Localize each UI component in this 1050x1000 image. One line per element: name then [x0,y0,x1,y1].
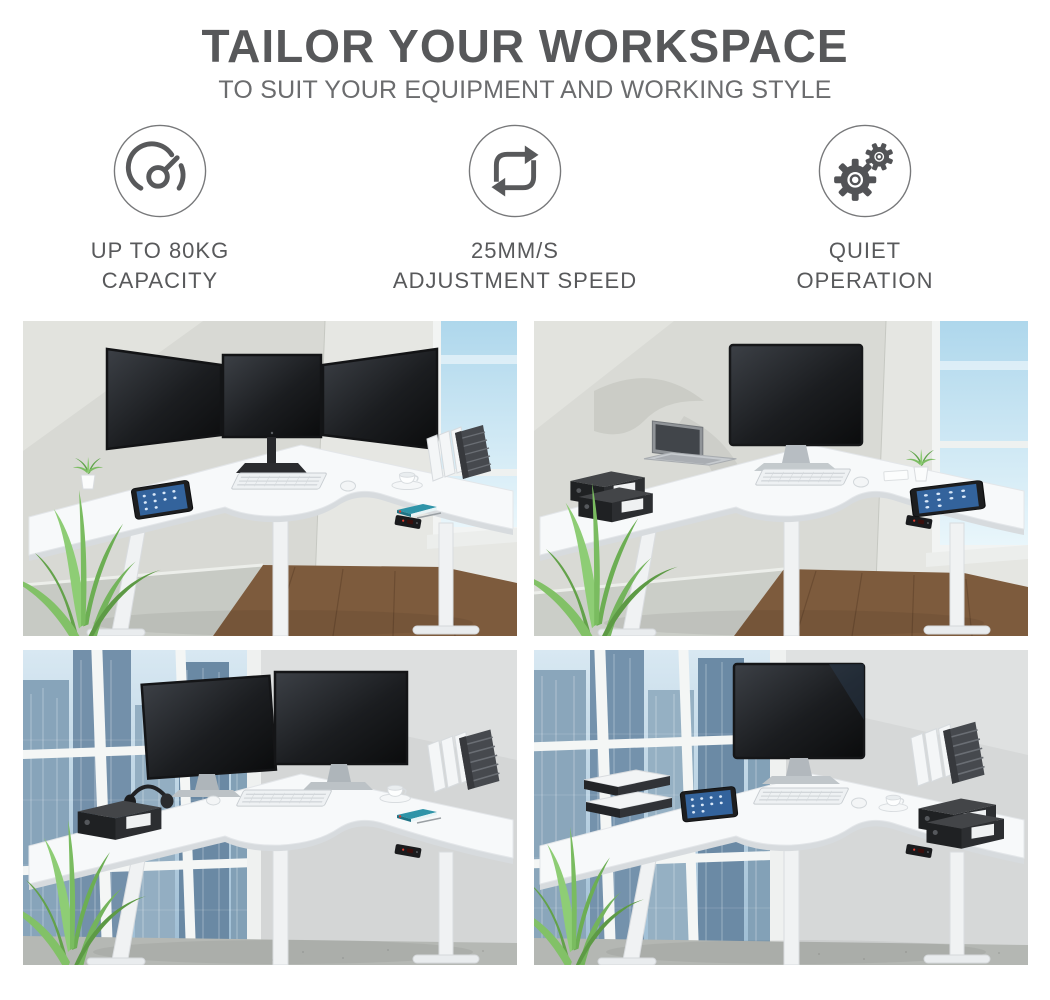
feature-quiet-label: QUIET OPERATION [797,236,934,297]
feature-speed-label: 25MM/S ADJUSTMENT SPEED [393,236,637,297]
feature-quiet: QUIET OPERATION [710,122,1020,297]
photo-dual-monitor-setup [23,650,517,965]
page-subtitle: TO SUIT YOUR EQUIPMENT AND WORKING STYLE [0,77,1050,105]
photo-triple-monitor-setup [23,321,517,636]
feature-capacity: UP TO 80KG CAPACITY [0,122,320,297]
feature-list: UP TO 80KG CAPACITY 25MM/S ADJUSTMENT SP… [0,122,1050,297]
feature-capacity-label: UP TO 80KG CAPACITY [91,236,229,297]
gears-icon [816,122,914,220]
header: TAILOR YOUR WORKSPACE TO SUIT YOUR EQUIP… [0,0,1050,105]
photo-monitor-laptop-setup [534,321,1028,636]
feature-speed: 25MM/S ADJUSTMENT SPEED [320,122,710,297]
photo-gallery [23,321,1029,965]
photo-single-monitor-setup [534,650,1028,965]
cycle-arrows-icon [466,122,564,220]
speedometer-icon [111,122,209,220]
page-title: TAILOR YOUR WORKSPACE [0,22,1050,70]
